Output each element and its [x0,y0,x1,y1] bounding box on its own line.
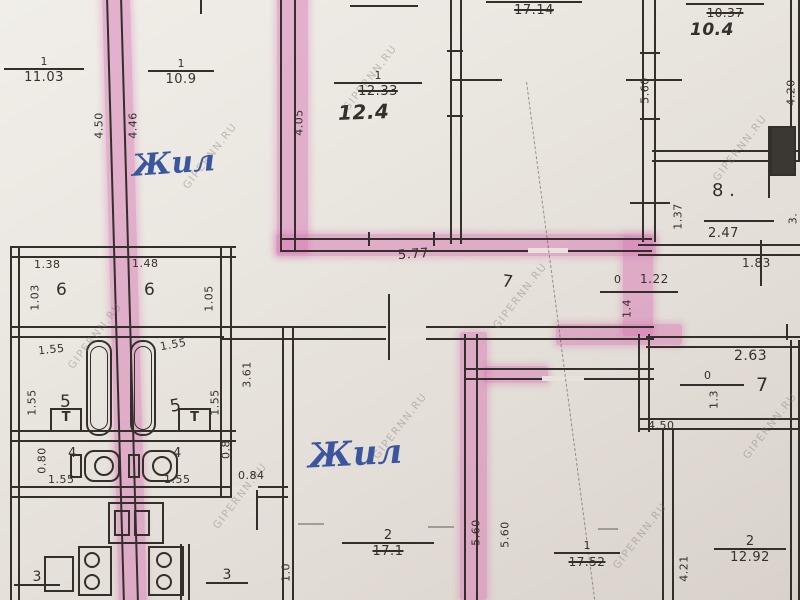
room-area-label: 1 17.52 [554,540,620,569]
dimension: 1.0 [280,556,293,590]
dimension: 1.48 [132,257,159,270]
bathtub-symbol [134,346,152,430]
window-tick [786,324,788,340]
room-number: 3 [33,572,42,583]
dimension: 1.22 [640,272,669,286]
stove-burner [84,574,100,590]
fraction-bar [206,582,248,584]
room-number: 1 [178,58,185,69]
dimension: 1.55 [164,473,191,486]
dimension: 1.3 [708,383,721,417]
room-area-label: 10.37 [686,2,764,20]
room-number: 8 . [712,180,735,201]
closet-number: 0 [704,369,712,382]
dimension: 4.50 [648,419,675,432]
room-number: 7 [501,271,515,292]
room-number: 6 [56,280,67,300]
room-area-label: 1 12.33 [334,70,422,99]
fraction-bar [554,552,620,554]
dimension: 3.61 [241,358,254,392]
wall [646,336,800,348]
dimension: 1.55 [159,336,187,353]
door-opening [386,326,426,340]
faint-mark [598,528,618,530]
room-number: 3 [223,570,232,581]
room-area: 11.03 [24,71,64,85]
window-tick [640,118,660,120]
sink-symbol: T [178,408,211,432]
room-number: 1 [41,56,48,67]
dimension: 0.84 [238,469,265,482]
dimension: 1.4 [621,292,634,326]
dimension: 1.05 [203,282,216,316]
dimension: 1.55 [37,342,65,358]
dim-line [626,79,682,81]
dimension: 5.77 [398,246,430,263]
room-number: 2 [746,536,754,547]
room-area-crossed: 17.1 [373,545,404,559]
room-area: 10.9 [166,73,197,87]
dimension: 0.80 [36,444,49,478]
wall-stub [200,0,202,14]
window-tick [447,50,463,52]
room-area-label: 3 [206,570,248,585]
window-tick [640,52,660,54]
dimension: 2.63 [734,348,767,364]
room-area-label: 1 10.9 [148,58,214,87]
room-area-label: 2 12.92 [714,536,786,565]
room-area-handwritten: 12.4 [338,99,390,125]
dim-line [450,79,502,81]
sink-glyph: T [190,410,199,425]
door-opening [542,376,584,381]
room-number: 6 [144,280,155,300]
wall [10,326,224,338]
room-number: 4 [173,446,181,461]
room-area-crossed: 10.37 [707,6,744,20]
wall [10,246,20,600]
closet-number: 0 [614,273,622,286]
stove-burner [84,552,100,568]
dimension: 5.60 [470,516,483,550]
dimension: 1.55 [26,386,39,420]
dimension: 1.83 [742,256,771,270]
door-line [388,294,390,360]
stove-burner [156,574,172,590]
room-number: 5 [168,395,182,417]
room-area: 12.92 [730,551,770,565]
toilet-bowl [94,456,114,476]
window-tick [433,232,435,246]
room-area-label: 1 11.03 [4,56,84,85]
dim-line [704,220,774,222]
dim-line [630,202,670,204]
room-number: 2 [384,530,392,541]
dimension: 4.05 [293,106,306,140]
faint-mark [428,526,454,528]
watermark: GIPERNN.RU [711,113,770,184]
dimension: 5.60 [499,518,512,552]
bathtub-symbol [90,346,108,430]
dim-line [600,291,678,293]
wall [638,244,800,256]
wall [642,0,656,242]
room-area-label: 17.14 [486,0,582,18]
room-number: 7 [756,374,768,396]
room-area-handwritten: 10.4 [690,20,734,40]
wall [790,340,800,600]
dimension: 4.46 [127,109,140,143]
wall [450,0,462,244]
balcony-door-block [770,126,796,176]
room-area-crossed: 17.14 [514,4,554,18]
dimension: 4.21 [678,552,691,586]
room-number: 4 [68,446,76,461]
handwritten-note: Жил [131,143,216,184]
fraction-bar [14,584,60,586]
wall [280,238,652,252]
wall-stub [350,5,418,7]
room-number: 1 [375,70,382,81]
room-area-crossed: 12.33 [358,85,398,99]
room-area-label: 3 [14,572,60,587]
room-area-crossed: 17.52 [569,555,606,569]
wall [10,246,236,258]
dimension: 1.03 [29,281,42,315]
fraction-bar [686,3,764,5]
watermark: GIPERNN.RU [491,261,550,332]
elevator-car [134,510,150,536]
dimension: 4.20 [785,76,798,110]
room-number: 1 [584,540,591,551]
toilet-symbol [128,454,140,478]
dimension: 1.37 [672,200,685,234]
door-line [256,490,258,530]
window-tick [447,115,463,117]
dimension: 5.60 [639,74,652,108]
window-tick [368,232,370,246]
floor-plan: T T GIPERNN.RU GIPERNN.RU GIPERNN.RU GIP… [0,0,800,600]
elevator-car [114,510,130,536]
dimension: 2.47 [708,226,739,241]
room-area-label: 2 17.1 [342,530,434,559]
dimension: 1.55 [48,473,75,486]
sink-glyph: T [62,410,71,425]
handwritten-note: Жил [307,432,403,477]
dimension: 1.38 [34,258,61,271]
stove-burner [156,552,172,568]
dimension: 4.50 [93,109,106,143]
room-number: 5 [60,392,71,412]
dimension: 3. [787,202,800,236]
dimension: 1.55 [209,386,222,420]
faint-mark [298,523,324,525]
dimension: 0.8 [220,433,233,467]
